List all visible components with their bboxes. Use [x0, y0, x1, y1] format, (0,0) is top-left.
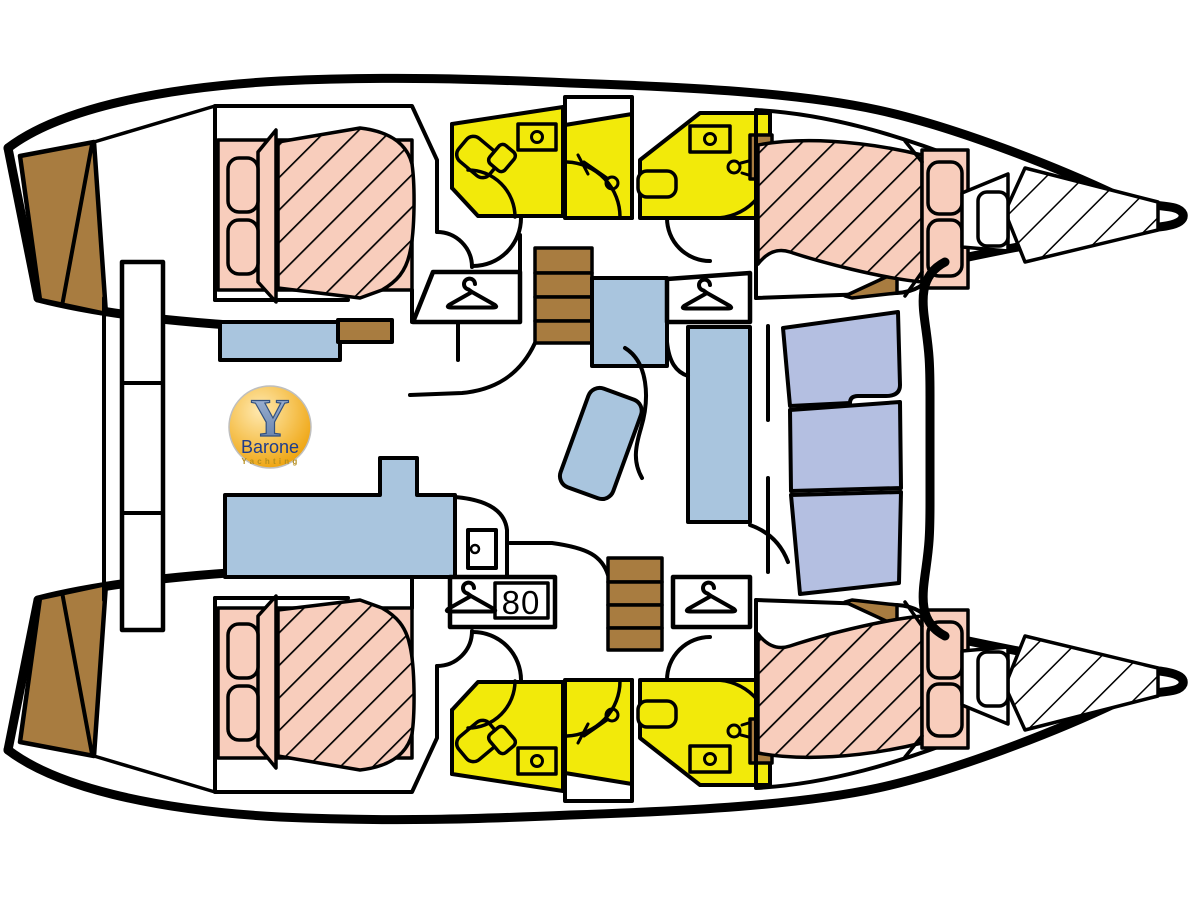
- companionway-step: [535, 248, 592, 273]
- salon-wall: [410, 343, 535, 395]
- bed-mattress-port: [278, 600, 414, 770]
- floor-plan-canvas: 80 Y Barone Yachting: [0, 0, 1200, 899]
- logo: Y Barone Yachting: [229, 386, 311, 468]
- forepeak-berth-stbd: [1005, 168, 1158, 262]
- yacht-layout-svg: 80 Y Barone Yachting: [0, 0, 1200, 899]
- galley-counter: [688, 327, 750, 522]
- gunwale-line-stbd: [94, 106, 215, 142]
- bathroom-shower-stbd: [565, 114, 632, 218]
- side-shelf: [220, 322, 340, 360]
- bed-pillow-stbd: [928, 162, 962, 214]
- stairs-wall: [510, 543, 608, 575]
- port-hull: [8, 478, 1183, 820]
- side-step: [338, 320, 392, 342]
- companionway-step: [535, 321, 592, 343]
- bed-headboard-stbd: [258, 130, 276, 302]
- forepeak-cushion-port: [978, 652, 1008, 706]
- aft-platform: [122, 262, 163, 630]
- door-swing-arc-port: [667, 637, 710, 680]
- door-swing-arc-stbd: [473, 218, 521, 266]
- starboard-hull: [8, 78, 1183, 420]
- companionway-step: [535, 273, 592, 297]
- bed-mattress-stbd: [278, 128, 414, 298]
- companionway-step: [608, 558, 662, 582]
- cockpit-bench: [783, 312, 900, 406]
- forepeak-cushion-stbd: [978, 192, 1008, 246]
- forepeak-berth-port: [1005, 636, 1158, 730]
- bed-headboard-port: [258, 596, 276, 768]
- sink-icon-port: [690, 746, 730, 772]
- bed-pillow-port: [928, 684, 962, 736]
- foredeck-edge: [923, 262, 945, 636]
- bed-pillow-stbd: [228, 220, 258, 274]
- bed-pillow-port: [228, 686, 258, 740]
- logo-subtitle-text: Yachting: [242, 457, 301, 466]
- gunwale-line-port: [94, 756, 215, 792]
- door-swing-arc-port: [473, 632, 521, 680]
- bow-bed-mattress-stbd: [758, 141, 922, 282]
- salon-settee: [225, 458, 455, 577]
- bed-pillow-port: [228, 624, 258, 678]
- door-swing-arc-stbd: [667, 218, 710, 261]
- salon-wall: [667, 322, 688, 376]
- bed-pillow-stbd: [228, 158, 258, 212]
- chart-table: [557, 385, 646, 503]
- sink-icon-port: [518, 748, 556, 774]
- sink-icon-stbd: [518, 124, 556, 150]
- companionway-step: [535, 297, 592, 321]
- bow-bed-mattress-port: [758, 616, 922, 757]
- cabin-door-arc-stbd: [437, 232, 472, 267]
- toilet-icon-stbd: [638, 171, 676, 197]
- toilet-icon-port: [638, 701, 676, 727]
- sink-icon-stbd: [690, 126, 730, 152]
- cockpit-bench: [791, 492, 901, 594]
- door-knob-icon: [471, 545, 479, 553]
- cabin-door-arc-port: [437, 631, 472, 666]
- logo-brand-text: Barone: [241, 437, 299, 457]
- companionway-step: [608, 582, 662, 605]
- companionway-step: [608, 628, 662, 650]
- cockpit-bench: [790, 402, 901, 491]
- capacity-badge: 80: [502, 584, 541, 621]
- bathroom-shower-port: [565, 680, 632, 784]
- companionway-step: [608, 605, 662, 628]
